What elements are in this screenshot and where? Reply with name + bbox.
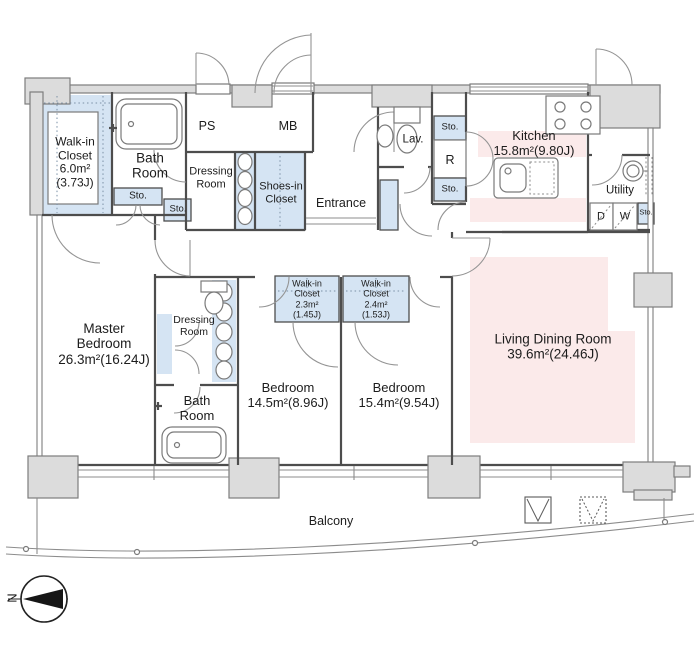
balcony-label: Balcony (309, 514, 353, 528)
dressing-room-master-label: Dressing Room (173, 315, 214, 339)
kitchen-label: Kitchen 15.8m²(9.80J) (494, 129, 575, 159)
utility-sink-icon (623, 161, 648, 181)
lavatory-sink-icon (377, 125, 393, 147)
north-label: N (6, 593, 21, 602)
master-bedroom-label: Master Bedroom 26.3m²(16.24J) (58, 321, 150, 367)
washer-label: W (620, 211, 630, 224)
storage-label-e: Sto. (639, 209, 652, 218)
vent-markers (525, 497, 606, 523)
utility-label: Utility (606, 184, 634, 197)
bedroom1-label: Bedroom 14.5m²(8.96J) (248, 381, 329, 411)
storage-label-c: Sto. (442, 123, 459, 134)
walk-in-closet-bedroom2-label: Walk-in Closet 2.4m² (1.53J) (361, 279, 391, 320)
pipe-shaft-label: PS (199, 119, 216, 133)
storage-label-a: Sto. (129, 190, 147, 201)
storage-label-b: Sto. (170, 205, 187, 216)
entrance-label: Entrance (316, 196, 366, 210)
meter-box-label: MB (279, 119, 298, 133)
windows (78, 466, 623, 480)
walk-in-closet-main-label: Walk-in Closet 6.0m² (3.73J) (55, 136, 95, 191)
kitchen-island-sink (494, 158, 558, 198)
living-dining-room-label: Living Dining Room 39.6m²(24.46J) (494, 332, 611, 363)
bedroom2-label: Bedroom 15.4m²(9.54J) (359, 381, 440, 411)
bath-room-main-label: Bath Room (132, 151, 168, 182)
bathtub-master-icon (162, 427, 226, 463)
storage-label-d: Sto. (442, 185, 459, 196)
refrigerator-label: R (445, 153, 454, 167)
shoes-in-closet-label: Shoes-in Closet (259, 180, 302, 205)
dryer-label: D (597, 211, 605, 224)
walk-in-closet-bedroom1-label: Walk-in Closet 2.3m² (1.45J) (292, 279, 322, 320)
bath-room-master-label: Bath Room (180, 394, 215, 424)
lavatory-label: Lav. (403, 133, 424, 146)
floor-plan: Walk-in Closet 6.0m² (3.73J) Bath Room S… (0, 0, 700, 650)
bathtub-main-icon (116, 99, 182, 149)
dressing-room-entry-label: Dressing Room (189, 165, 232, 190)
